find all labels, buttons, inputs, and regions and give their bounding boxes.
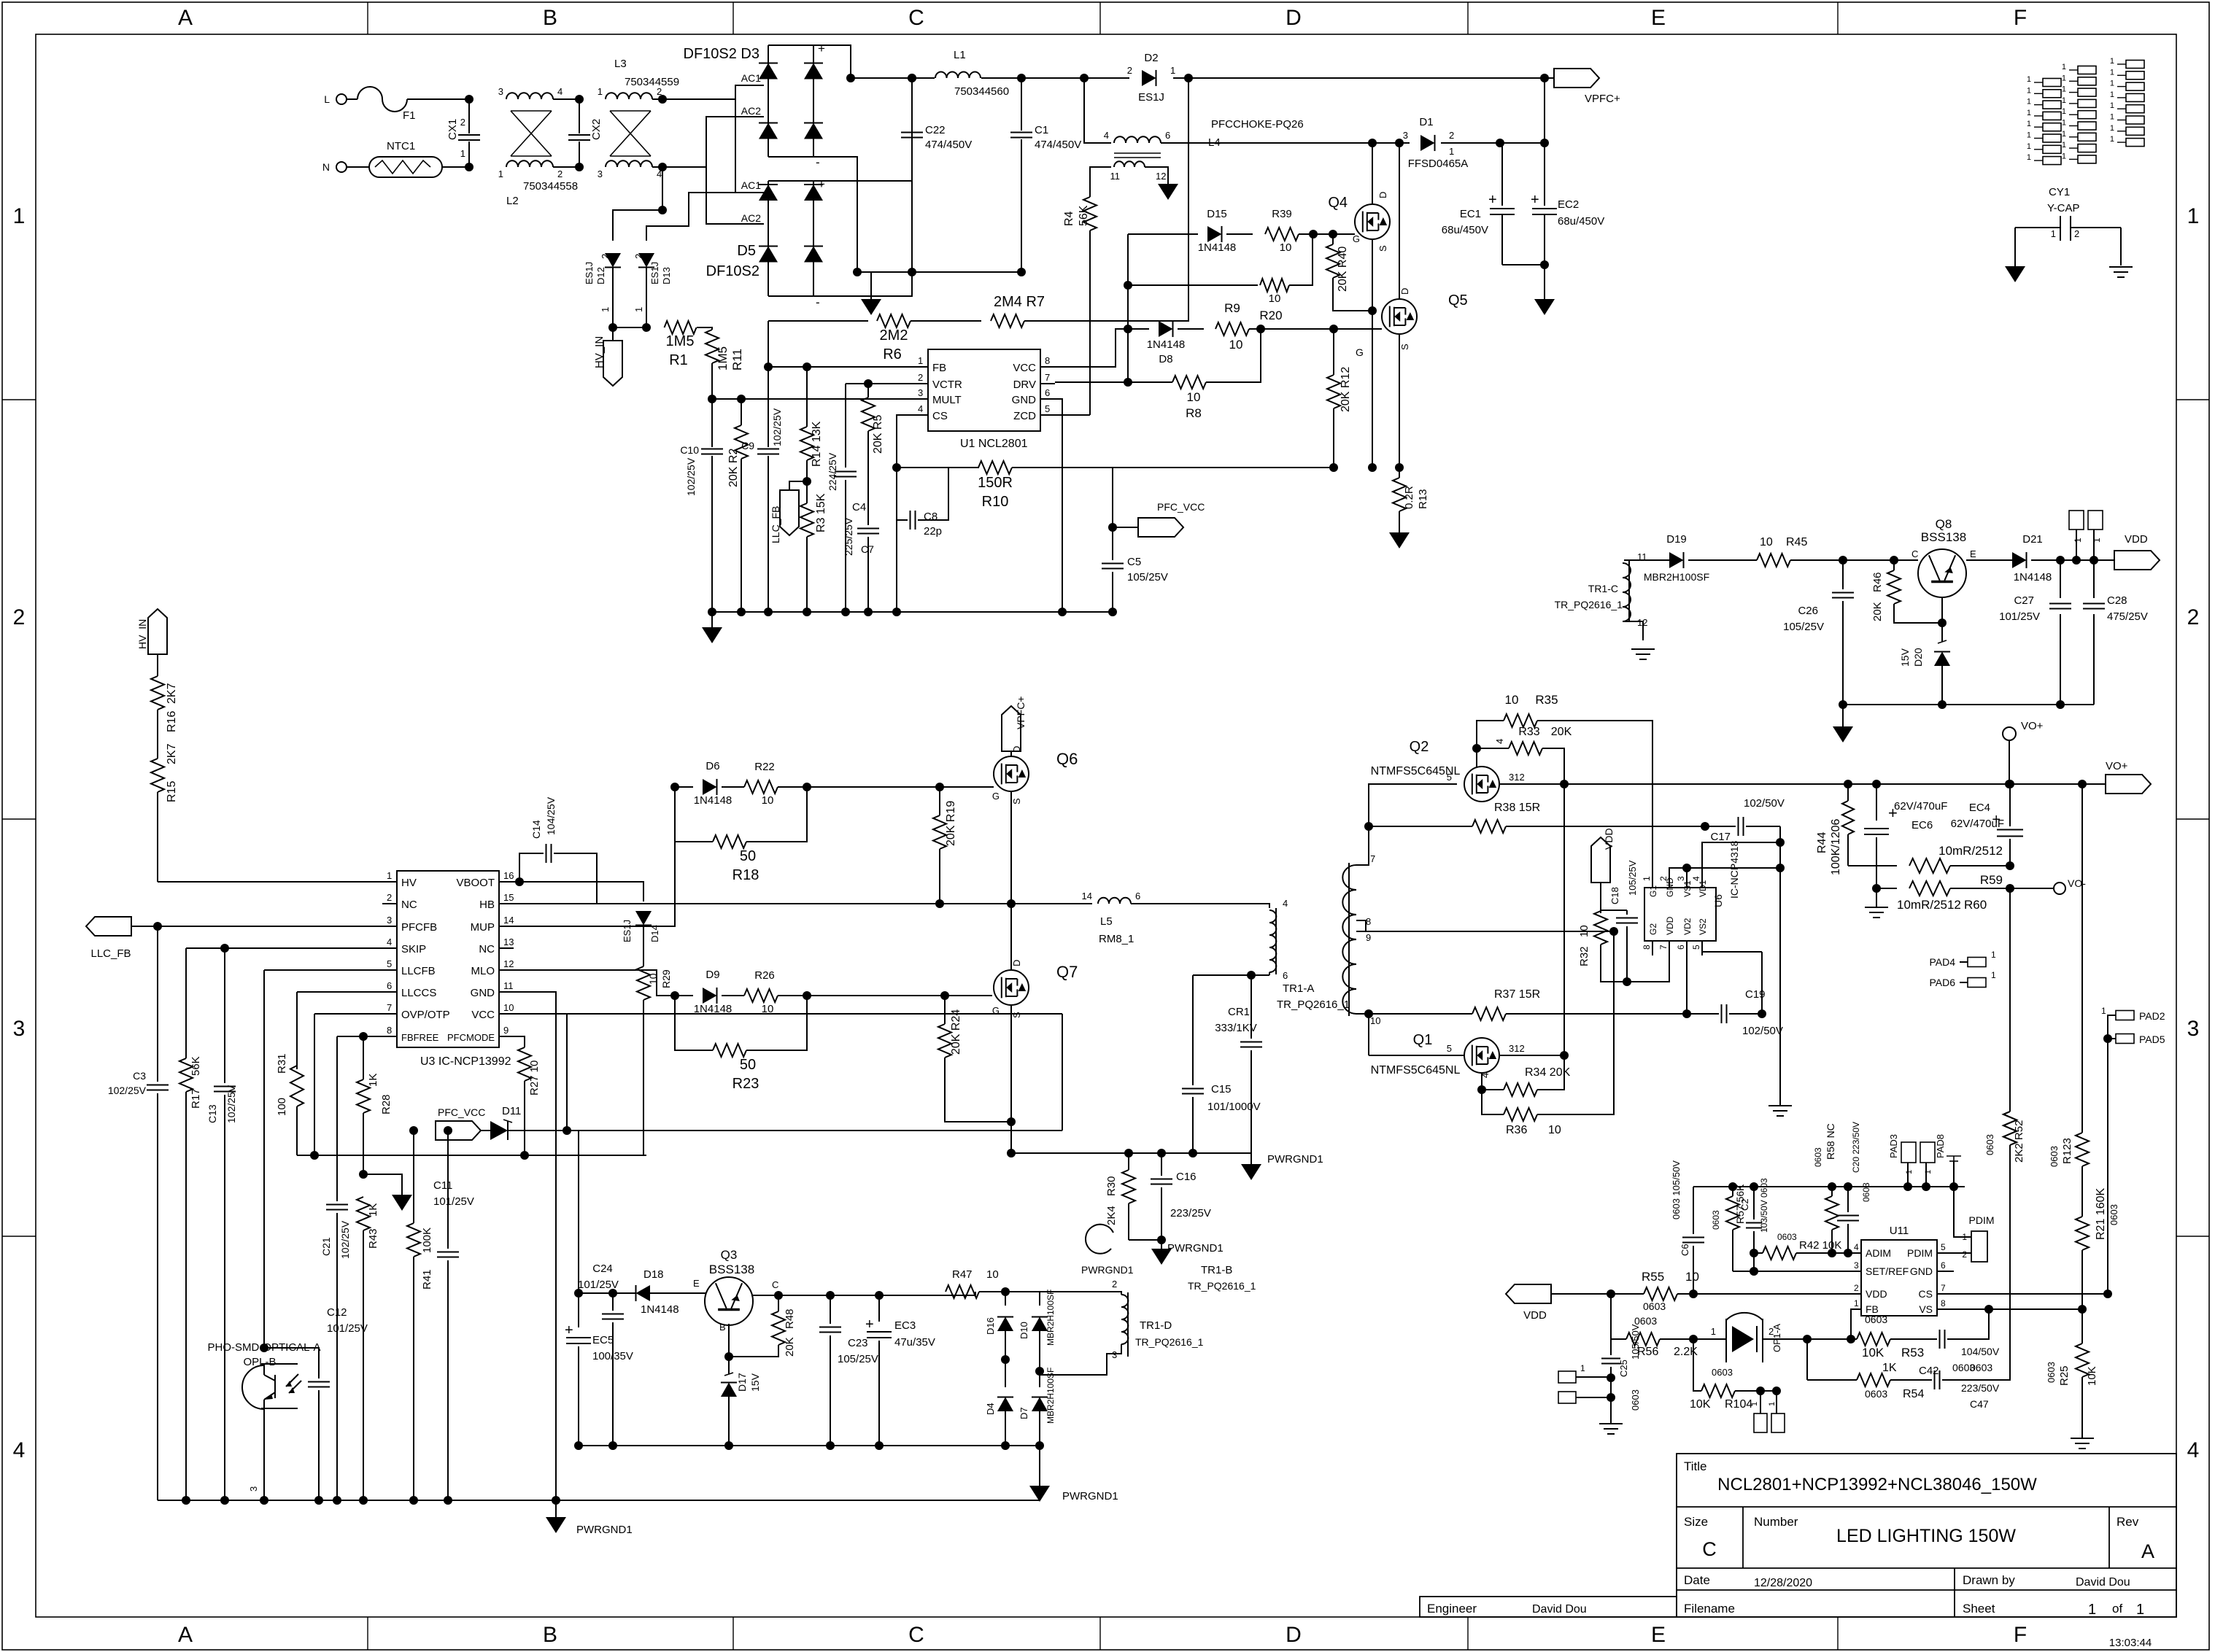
svg-text:TR1-D: TR1-D	[1140, 1319, 1172, 1332]
svg-text:R41: R41	[421, 1269, 433, 1290]
svg-text:VS: VS	[1919, 1303, 1933, 1315]
svg-text:1: 1	[2062, 74, 2066, 82]
svg-text:Q8: Q8	[1936, 517, 1952, 531]
svg-text:R27 10: R27 10	[528, 1060, 541, 1095]
svg-text:D20: D20	[1912, 648, 1924, 667]
svg-text:2K7: 2K7	[166, 743, 178, 764]
svg-text:C4: C4	[852, 501, 866, 513]
svg-text:R14 13K: R14 13K	[811, 421, 823, 467]
svg-text:6: 6	[1135, 891, 1140, 901]
svg-text:56K: 56K	[190, 1056, 202, 1076]
svg-text:R43: R43	[367, 1228, 379, 1249]
svg-text:MULT: MULT	[932, 394, 962, 406]
svg-text:102/25V: 102/25V	[339, 1220, 351, 1259]
svg-text:C14: C14	[530, 820, 542, 839]
svg-text:20K R5: 20K R5	[872, 415, 884, 454]
svg-text:D13: D13	[661, 267, 672, 284]
svg-text:C: C	[1702, 1538, 1717, 1560]
svg-text:4: 4	[1104, 130, 1109, 141]
svg-text:1: 1	[1991, 970, 1996, 980]
svg-text:68u/450V: 68u/450V	[1442, 224, 1488, 236]
svg-text:TR1-A: TR1-A	[1283, 982, 1314, 995]
svg-text:105/25V: 105/25V	[1627, 860, 1638, 896]
svg-text:2: 2	[1854, 1283, 1859, 1293]
svg-text:2: 2	[557, 168, 563, 179]
svg-text:PFC_VCC: PFC_VCC	[1157, 501, 1205, 513]
svg-text:68u/450V: 68u/450V	[1558, 215, 1604, 228]
svg-text:2M2: 2M2	[880, 327, 908, 344]
svg-text:C9: C9	[741, 440, 754, 451]
svg-text:14: 14	[503, 915, 514, 926]
svg-text:10: 10	[1685, 1270, 1699, 1284]
svg-text:EC3: EC3	[894, 1319, 916, 1332]
svg-text:105/25V: 105/25V	[838, 1353, 878, 1365]
svg-text:SET/REF: SET/REF	[1866, 1265, 1909, 1277]
svg-text:IC-NCP4318: IC-NCP4318	[1728, 840, 1740, 899]
svg-text:A: A	[178, 1623, 193, 1647]
svg-text:LLC_FB: LLC_FB	[90, 947, 131, 960]
svg-text:10: 10	[986, 1268, 999, 1281]
svg-text:1: 1	[1711, 1326, 1716, 1337]
svg-text:MBR2H100SF: MBR2H100SF	[1644, 571, 1709, 583]
svg-text:102/25V: 102/25V	[685, 457, 697, 496]
svg-text:56K: 56K	[1078, 205, 1090, 226]
svg-text:7: 7	[1045, 372, 1050, 383]
svg-text:5: 5	[1447, 1043, 1452, 1054]
svg-text:C21: C21	[320, 1237, 332, 1256]
svg-text:ZCD: ZCD	[1013, 410, 1036, 422]
svg-text:GND: GND	[471, 987, 495, 999]
svg-text:VDD: VDD	[1523, 1309, 1547, 1322]
svg-text:D2: D2	[1144, 52, 1158, 64]
svg-text:D5: D5	[737, 243, 756, 259]
svg-text:FBFREE: FBFREE	[401, 1032, 439, 1043]
svg-text:HV: HV	[401, 877, 417, 889]
svg-text:9: 9	[1366, 932, 1371, 943]
svg-text:PFC_VCC: PFC_VCC	[438, 1106, 485, 1118]
svg-text:VS2: VS2	[1698, 918, 1708, 935]
svg-text:D9: D9	[706, 969, 719, 981]
svg-text:102/50V: 102/50V	[1744, 797, 1785, 810]
svg-text:1: 1	[2110, 80, 2114, 88]
svg-text:101/1000V: 101/1000V	[1207, 1101, 1261, 1113]
svg-text:E: E	[693, 1278, 700, 1289]
svg-text:VS1: VS1	[1682, 880, 1693, 897]
svg-text:R46: R46	[1871, 572, 1884, 592]
svg-text:R39: R39	[1272, 208, 1292, 220]
svg-text:C1: C1	[1035, 124, 1048, 136]
svg-text:David Dou: David Dou	[1532, 1603, 1587, 1616]
svg-text:PAD4: PAD4	[1929, 956, 1955, 968]
svg-text:PWRGND1: PWRGND1	[576, 1524, 633, 1536]
svg-text:750344559: 750344559	[625, 76, 679, 88]
svg-text:12/28/2020: 12/28/2020	[1754, 1577, 1812, 1589]
svg-text:GND: GND	[1012, 394, 1037, 406]
svg-text:4: 4	[1480, 1073, 1491, 1078]
svg-text:R55: R55	[1642, 1270, 1664, 1284]
svg-text:DF10S2 D3: DF10S2 D3	[684, 46, 760, 62]
svg-text:1: 1	[2110, 135, 2114, 144]
svg-text:R30: R30	[1105, 1176, 1118, 1196]
svg-text:S: S	[1011, 798, 1022, 804]
svg-text:C: C	[772, 1279, 778, 1290]
svg-text:1: 1	[1924, 1170, 1933, 1174]
svg-text:3: 3	[1854, 1260, 1859, 1271]
svg-text:S: S	[1011, 1012, 1022, 1018]
svg-text:474/450V: 474/450V	[1035, 139, 1081, 151]
svg-text:D7: D7	[1018, 1407, 1029, 1419]
svg-text:10K: 10K	[1690, 1398, 1711, 1411]
svg-text:C6: C6	[1679, 1244, 1690, 1256]
svg-text:LLCCS: LLCCS	[401, 987, 436, 999]
svg-text:C16: C16	[1176, 1171, 1197, 1183]
svg-text:1: 1	[2062, 152, 2066, 160]
svg-text:10: 10	[1187, 390, 1201, 404]
svg-text:R6: R6	[883, 346, 902, 362]
svg-text:10: 10	[1269, 292, 1281, 305]
svg-text:0603: 0603	[1984, 1134, 1995, 1155]
svg-text:EC6: EC6	[1911, 819, 1933, 831]
svg-text:15: 15	[503, 892, 514, 903]
svg-text:7: 7	[387, 1002, 392, 1013]
svg-text:C2: C2	[1739, 1198, 1750, 1211]
svg-text:15V: 15V	[1899, 648, 1911, 667]
svg-text:D: D	[1399, 288, 1410, 295]
svg-text:R37 15R: R37 15R	[1494, 988, 1540, 1001]
svg-text:0603 105/50V: 0603 105/50V	[1671, 1160, 1682, 1219]
svg-text:20K: 20K	[784, 1337, 796, 1357]
svg-text:R45: R45	[1786, 536, 1807, 548]
svg-text:1N4148: 1N4148	[2014, 571, 2052, 583]
svg-text:2M4 R7: 2M4 R7	[994, 294, 1045, 310]
svg-text:1: 1	[2110, 57, 2114, 66]
svg-text:C: C	[908, 6, 924, 30]
svg-text:R13: R13	[1417, 489, 1429, 509]
svg-text:2: 2	[13, 605, 26, 629]
svg-text:2: 2	[387, 892, 392, 903]
svg-text:1: 1	[2110, 113, 2114, 122]
svg-text:47u/35V: 47u/35V	[894, 1336, 935, 1349]
svg-text:L3: L3	[614, 58, 627, 70]
svg-text:475/25V: 475/25V	[2107, 610, 2148, 623]
svg-text:F1: F1	[403, 109, 416, 122]
svg-text:62V/470uF: 62V/470uF	[1951, 818, 2004, 830]
svg-text:11: 11	[1110, 171, 1121, 182]
svg-text:VD2: VD2	[1682, 918, 1693, 935]
svg-text:13:03:44: 13:03:44	[2109, 1637, 2152, 1649]
svg-text:R60: R60	[1964, 898, 1987, 912]
svg-text:LED LIGHTING 150W: LED LIGHTING 150W	[1836, 1526, 2016, 1546]
svg-text:8: 8	[1045, 355, 1050, 366]
svg-text:ES1J: ES1J	[584, 262, 595, 284]
svg-text:HB: HB	[479, 899, 495, 911]
svg-text:Q3: Q3	[721, 1248, 738, 1262]
svg-text:5: 5	[1691, 945, 1701, 950]
svg-text:SKIP: SKIP	[401, 943, 426, 955]
svg-text:10: 10	[1548, 1124, 1561, 1136]
svg-text:L1: L1	[954, 49, 966, 61]
svg-text:0603: 0603	[1630, 1389, 1641, 1411]
svg-text:1: 1	[460, 148, 465, 159]
svg-text:3: 3	[1676, 876, 1686, 881]
svg-text:VD1: VD1	[1698, 880, 1708, 897]
svg-text:C42: C42	[1919, 1365, 1939, 1377]
svg-text:ES1J: ES1J	[1138, 91, 1164, 104]
svg-text:1K: 1K	[367, 1074, 379, 1087]
svg-text:1: 1	[2027, 131, 2031, 140]
svg-text:U6: U6	[1712, 894, 1724, 907]
svg-text:D4: D4	[985, 1403, 996, 1415]
svg-text:U11: U11	[1890, 1225, 1909, 1237]
svg-text:2: 2	[460, 117, 465, 128]
svg-text:C26: C26	[1798, 605, 1818, 617]
svg-text:224/25V: 224/25V	[827, 452, 838, 491]
svg-text:1: 1	[2027, 86, 2031, 95]
svg-text:VBOOT: VBOOT	[456, 877, 495, 889]
svg-text:1: 1	[2027, 153, 2031, 162]
svg-text:1N4148: 1N4148	[694, 794, 732, 807]
svg-text:VCC: VCC	[471, 1009, 495, 1021]
svg-text:D15: D15	[1207, 208, 1227, 220]
svg-text:12: 12	[1156, 171, 1166, 182]
svg-text:D: D	[1286, 6, 1302, 30]
svg-text:S: S	[1377, 245, 1388, 252]
svg-text:2: 2	[2074, 228, 2079, 239]
svg-text:+: +	[1531, 192, 1539, 208]
svg-text:B: B	[543, 6, 557, 30]
svg-text:5: 5	[387, 958, 392, 969]
svg-text:G: G	[1353, 233, 1360, 244]
svg-text:G1: G1	[1648, 885, 1658, 897]
svg-text:ADIM: ADIM	[1866, 1247, 1891, 1259]
svg-text:R4: R4	[1063, 211, 1075, 226]
svg-text:20K R19: 20K R19	[945, 801, 957, 846]
svg-text:R29: R29	[660, 969, 672, 988]
svg-text:C23: C23	[848, 1337, 868, 1349]
svg-text:VDD: VDD	[2125, 533, 2148, 546]
svg-text:50: 50	[740, 1057, 756, 1073]
svg-text:C8: C8	[924, 511, 938, 523]
svg-text:2: 2	[918, 372, 923, 383]
svg-text:0603: 0603	[1865, 1314, 1887, 1325]
svg-text:R36: R36	[1506, 1124, 1527, 1136]
svg-text:TR_PQ2616_1: TR_PQ2616_1	[1188, 1280, 1256, 1292]
svg-text:PAD8: PAD8	[1935, 1134, 1946, 1158]
svg-text:ES1J: ES1J	[622, 920, 633, 942]
svg-text:10: 10	[1280, 241, 1292, 254]
svg-text:2: 2	[1962, 1249, 1967, 1260]
svg-text:C27: C27	[2014, 594, 2034, 607]
svg-text:8: 8	[1366, 916, 1371, 927]
svg-text:R9: R9	[1224, 301, 1240, 315]
svg-text:DF10S2: DF10S2	[706, 263, 759, 279]
svg-text:PAD3: PAD3	[1888, 1134, 1899, 1158]
svg-text:C3: C3	[133, 1070, 146, 1082]
svg-text:1: 1	[633, 307, 644, 312]
svg-text:R32: R32	[1578, 946, 1590, 966]
svg-text:R18: R18	[732, 867, 759, 883]
svg-text:312: 312	[1509, 1043, 1525, 1054]
svg-text:C7: C7	[861, 543, 874, 555]
svg-text:6: 6	[387, 980, 392, 991]
svg-text:1: 1	[1854, 1298, 1859, 1308]
svg-text:of: of	[2112, 1602, 2122, 1616]
svg-text:F: F	[2014, 6, 2027, 30]
svg-text:C28: C28	[2107, 594, 2127, 607]
svg-text:TR1-B: TR1-B	[1201, 1264, 1232, 1276]
svg-text:4: 4	[2187, 1438, 2200, 1462]
svg-text:20K R40: 20K R40	[1337, 247, 1349, 292]
svg-text:PFCCHOKE-PQ26: PFCCHOKE-PQ26	[1211, 118, 1304, 131]
svg-text:PFCMODE: PFCMODE	[447, 1032, 495, 1043]
svg-text:1K: 1K	[367, 1203, 379, 1217]
svg-text:S: S	[1399, 344, 1410, 350]
svg-text:EC2: EC2	[1558, 198, 1579, 211]
svg-text:VDD: VDD	[1665, 916, 1675, 935]
svg-text:PAD6: PAD6	[1929, 977, 1955, 988]
svg-text:Q1: Q1	[1413, 1032, 1433, 1048]
svg-text:10: 10	[762, 794, 774, 807]
svg-text:VPFC+: VPFC+	[1015, 696, 1027, 729]
svg-text:6: 6	[1676, 945, 1686, 950]
svg-text:1: 1	[2027, 120, 2031, 128]
svg-text:20K R24: 20K R24	[950, 1009, 962, 1055]
svg-text:101/25V: 101/25V	[1999, 610, 2040, 623]
svg-text:AC2: AC2	[741, 105, 761, 117]
svg-text:VO+: VO+	[2106, 760, 2128, 772]
svg-text:L2: L2	[506, 195, 519, 207]
svg-text:6: 6	[1283, 970, 1288, 981]
svg-text:0603: 0603	[2049, 1146, 2060, 1167]
svg-text:Filename: Filename	[1684, 1602, 1735, 1616]
svg-text:0603: 0603	[1712, 1367, 1733, 1378]
svg-text:G: G	[992, 1005, 1000, 1016]
svg-text:1: 1	[2110, 101, 2114, 110]
svg-text:Q7: Q7	[1056, 963, 1078, 981]
svg-text:U1 NCL2801: U1 NCL2801	[960, 438, 1028, 450]
svg-text:R17: R17	[190, 1088, 202, 1109]
svg-text:HV_IN: HV_IN	[593, 336, 606, 368]
svg-text:1: 1	[2027, 98, 2031, 106]
svg-text:GND: GND	[1910, 1265, 1933, 1277]
svg-text:MUP: MUP	[471, 921, 495, 934]
svg-text:8: 8	[387, 1025, 392, 1036]
svg-text:R38 15R: R38 15R	[1494, 802, 1540, 814]
svg-text:7: 7	[1658, 945, 1669, 950]
svg-text:1: 1	[2092, 538, 2102, 543]
svg-text:3: 3	[498, 86, 503, 97]
svg-text:4: 4	[1691, 876, 1701, 881]
svg-text:R34 20K: R34 20K	[1525, 1066, 1571, 1079]
svg-text:1M5: 1M5	[666, 333, 695, 349]
svg-text:DRV: DRV	[1013, 379, 1036, 391]
svg-text:B: B	[543, 1623, 557, 1647]
svg-text:EC4: EC4	[1969, 802, 1990, 814]
svg-text:PAD5: PAD5	[2139, 1034, 2165, 1045]
svg-text:1: 1	[1580, 1363, 1585, 1373]
svg-text:1: 1	[1642, 876, 1652, 881]
svg-text:C13: C13	[206, 1104, 218, 1123]
svg-text:R48: R48	[784, 1308, 796, 1329]
svg-text:50: 50	[740, 848, 756, 864]
svg-text:15V: 15V	[749, 1373, 761, 1392]
svg-text:PDIM: PDIM	[1969, 1214, 1995, 1226]
svg-text:0.2R: 0.2R	[1403, 486, 1415, 509]
svg-text:13: 13	[503, 936, 514, 947]
svg-text:104/50V: 104/50V	[1961, 1346, 2000, 1357]
svg-text:+: +	[818, 177, 825, 191]
svg-text:2: 2	[1112, 1279, 1117, 1290]
svg-text:NC: NC	[479, 943, 495, 955]
svg-text:C17: C17	[1710, 831, 1731, 843]
svg-text:1: 1	[2051, 228, 2056, 239]
svg-text:103/50V 0603: 103/50V 0603	[1759, 1178, 1769, 1233]
svg-text:4: 4	[387, 936, 392, 947]
svg-text:1: 1	[1905, 1170, 1914, 1174]
svg-text:1: 1	[2062, 63, 2066, 71]
svg-text:20K: 20K	[1871, 602, 1884, 621]
svg-text:CS: CS	[932, 410, 948, 422]
svg-text:R22: R22	[754, 761, 775, 773]
svg-text:Q6: Q6	[1056, 750, 1078, 768]
svg-text:0603: 0603	[2046, 1362, 2057, 1383]
svg-text:VDD: VDD	[1603, 828, 1615, 850]
svg-text:1: 1	[1449, 146, 1454, 157]
svg-text:2K7: 2K7	[166, 683, 178, 704]
svg-text:102/25V: 102/25V	[771, 408, 783, 446]
svg-text:5: 5	[1447, 772, 1452, 783]
svg-text:AC2: AC2	[741, 212, 761, 224]
svg-text:FB: FB	[932, 362, 946, 374]
svg-text:N: N	[322, 161, 330, 173]
svg-text:R20: R20	[1259, 309, 1282, 322]
svg-text:R35: R35	[1535, 693, 1558, 707]
svg-text:223/25V: 223/25V	[1170, 1207, 1211, 1219]
svg-text:R11: R11	[730, 349, 744, 371]
svg-text:Number: Number	[1754, 1515, 1798, 1529]
svg-text:C5: C5	[1127, 556, 1141, 568]
svg-text:NCL2801+NCP13992+NCL38046_150W: NCL2801+NCP13992+NCL38046_150W	[1717, 1475, 2037, 1494]
svg-text:VCC: VCC	[1013, 362, 1036, 374]
svg-text:PWRGND1: PWRGND1	[1081, 1264, 1134, 1276]
svg-text:R25: R25	[2058, 1365, 2071, 1386]
svg-text:105/25V: 105/25V	[1127, 571, 1168, 583]
svg-text:1: 1	[2062, 119, 2066, 128]
svg-text:8: 8	[1941, 1298, 1946, 1308]
svg-text:8: 8	[1642, 945, 1652, 950]
svg-text:10: 10	[1505, 693, 1519, 707]
svg-text:CX2: CX2	[590, 119, 603, 140]
svg-text:10mR/2512: 10mR/2512	[1938, 844, 2003, 858]
svg-text:20K: 20K	[1551, 726, 1572, 738]
svg-text:-: -	[816, 295, 820, 309]
svg-text:+: +	[1488, 192, 1497, 208]
svg-text:TR_PQ2616_1: TR_PQ2616_1	[1555, 599, 1623, 610]
svg-text:1: 1	[1750, 1402, 1759, 1406]
svg-text:Q4: Q4	[1328, 195, 1348, 211]
svg-text:Q5: Q5	[1448, 292, 1468, 309]
svg-text:5: 5	[1045, 403, 1050, 414]
svg-text:1: 1	[598, 86, 603, 97]
svg-text:R31: R31	[276, 1053, 288, 1074]
svg-text:C: C	[1911, 548, 1918, 559]
svg-text:1: 1	[2027, 142, 2031, 151]
svg-text:223/50V: 223/50V	[1961, 1382, 2000, 1394]
svg-text:1: 1	[2187, 204, 2200, 228]
svg-text:6: 6	[1045, 387, 1050, 398]
svg-text:3: 3	[13, 1017, 26, 1041]
svg-text:R16: R16	[166, 711, 178, 732]
